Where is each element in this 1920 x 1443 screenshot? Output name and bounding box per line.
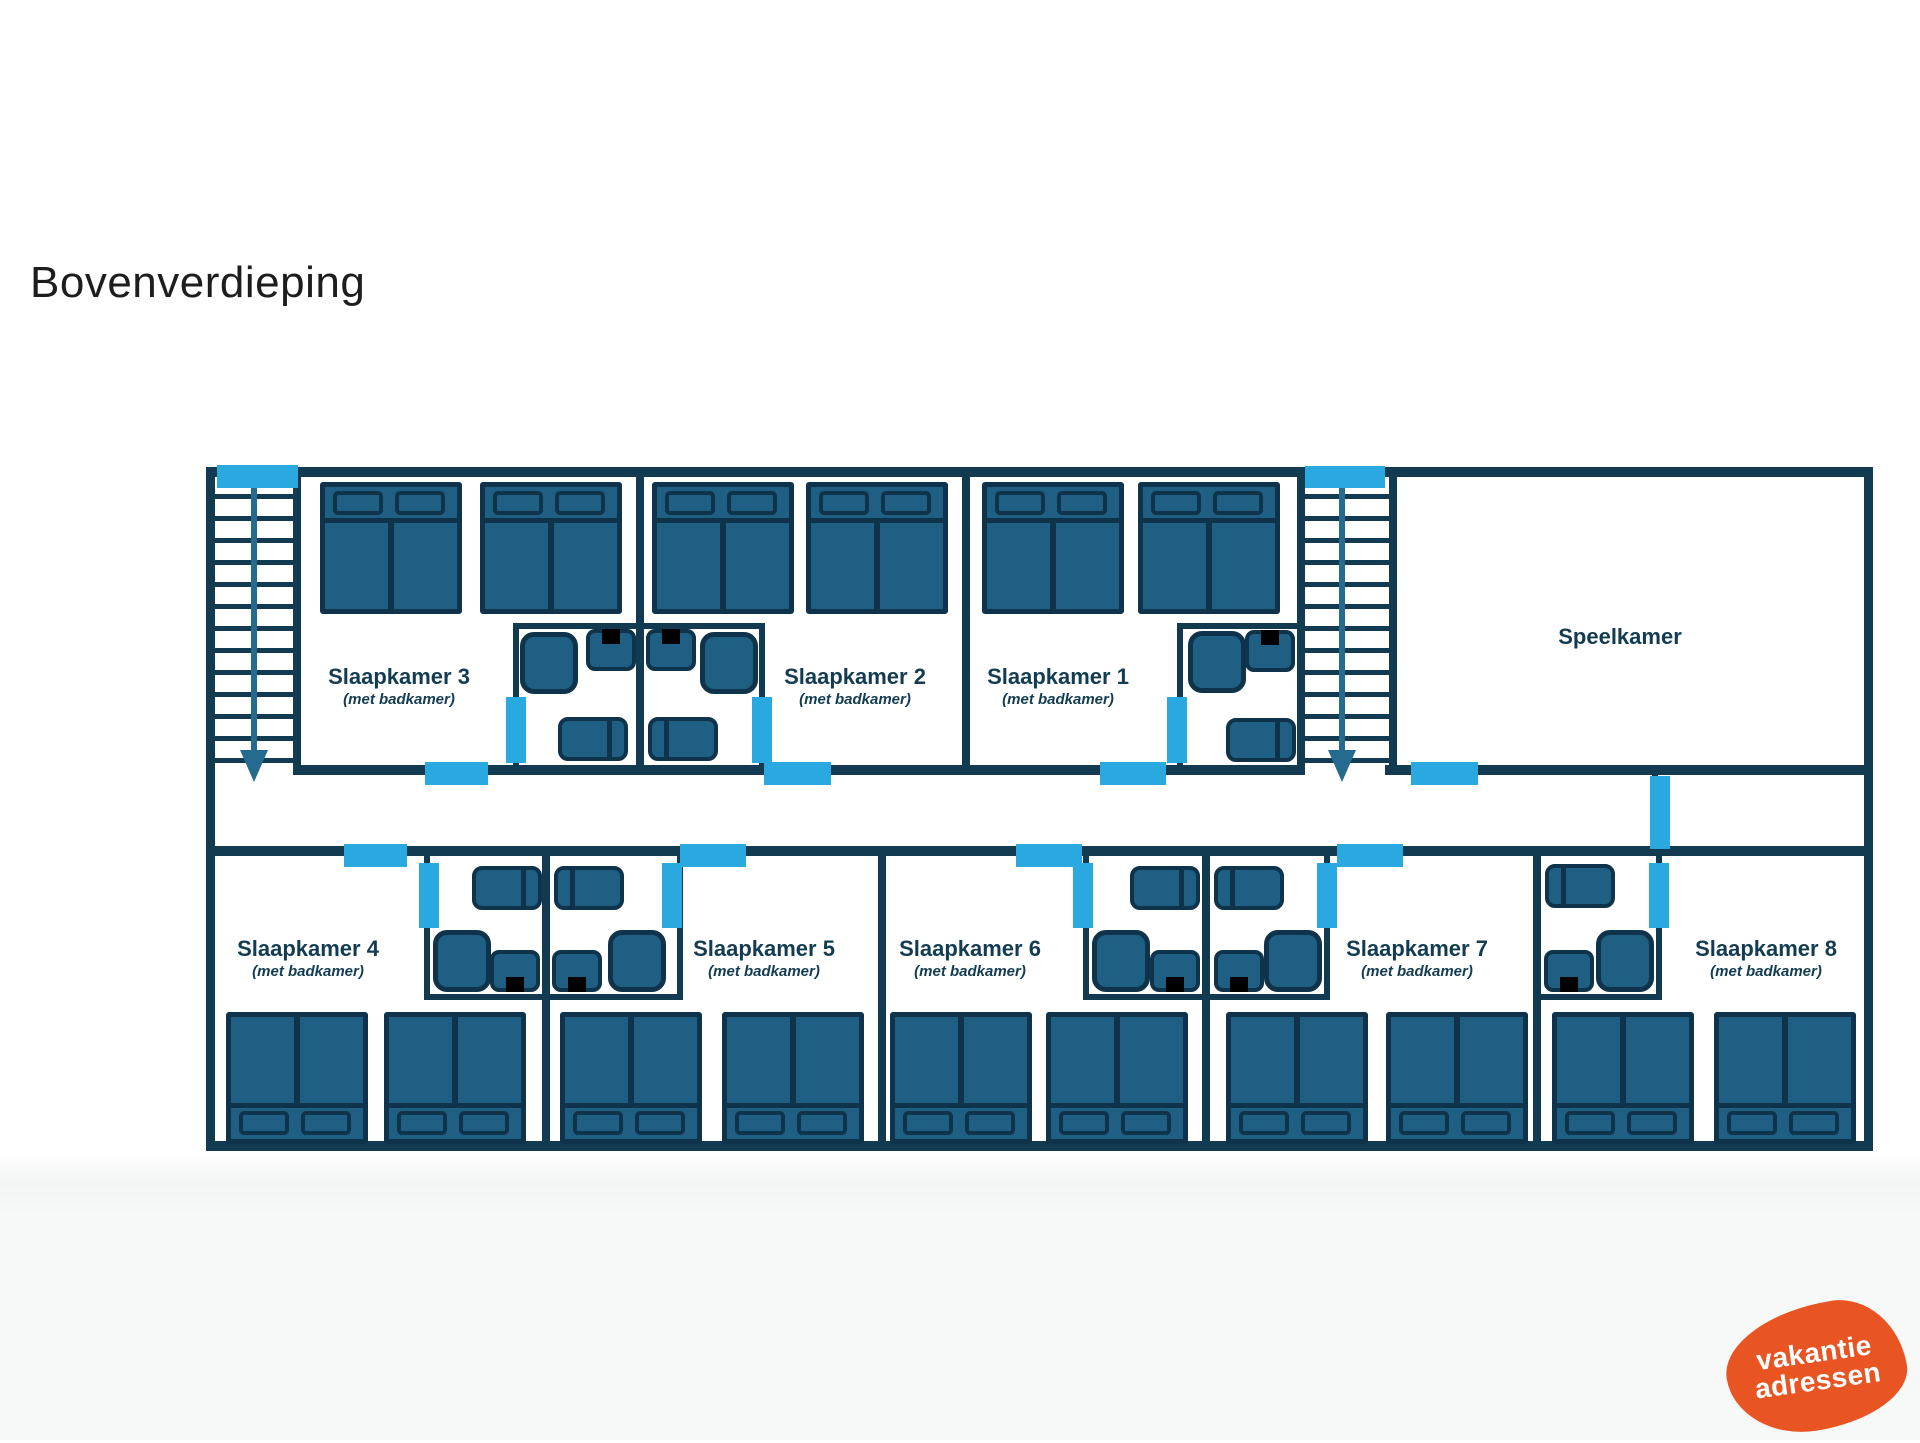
bathtub-icon — [1130, 866, 1200, 910]
room-subtitle: (met badkamer) — [1346, 963, 1488, 980]
shower-icon — [700, 632, 758, 694]
double-bed — [226, 1012, 368, 1144]
bathtub-icon — [558, 717, 628, 761]
shower-icon — [1092, 930, 1150, 992]
double-bed — [722, 1012, 864, 1144]
room-subtitle: (met badkamer) — [987, 691, 1129, 708]
door-marker — [1167, 697, 1187, 763]
double-bed — [1552, 1012, 1694, 1144]
shower-icon — [1188, 631, 1246, 693]
room-label-slaapkamer-3: Slaapkamer 3 (met badkamer) — [328, 664, 470, 708]
double-bed — [1714, 1012, 1856, 1144]
shower-icon — [608, 930, 666, 992]
wall — [206, 467, 215, 1151]
double-bed — [1226, 1012, 1368, 1144]
room-subtitle: (met badkamer) — [693, 963, 835, 980]
staircase-down-arrow — [240, 750, 268, 782]
room-name: Slaapkamer 8 — [1695, 936, 1837, 962]
bathtub-icon — [1545, 864, 1615, 908]
shower-icon — [433, 930, 491, 992]
room-label-slaapkamer-2: Slaapkamer 2 (met badkamer) — [784, 664, 926, 708]
floor-plan: Slaapkamer 3 (met badkamer) Slaapkamer 2… — [0, 0, 1920, 1440]
double-bed — [1386, 1012, 1528, 1144]
toilet-cistern — [1560, 977, 1578, 992]
toilet-icon — [1150, 950, 1200, 992]
vakantieadressen-logo: vakantie adressen — [1726, 1304, 1906, 1430]
bathroom-wall — [1535, 994, 1662, 1000]
door-marker — [419, 863, 439, 928]
wall — [1297, 467, 1305, 775]
wall — [636, 467, 644, 775]
room-subtitle: (met badkamer) — [1695, 963, 1837, 980]
room-label-slaapkamer-7: Slaapkamer 7 (met badkamer) — [1346, 936, 1488, 980]
door-marker — [344, 844, 407, 867]
staircase-center-rail — [251, 477, 257, 752]
toilet-cistern — [602, 629, 620, 644]
toilet-icon — [490, 950, 540, 992]
room-subtitle: (met badkamer) — [328, 691, 470, 708]
double-bed — [890, 1012, 1032, 1144]
door-marker — [217, 465, 298, 488]
double-bed — [806, 482, 948, 614]
double-bed — [652, 482, 794, 614]
bathtub-icon — [554, 866, 624, 910]
toilet-cistern — [1230, 977, 1248, 992]
room-label-slaapkamer-1: Slaapkamer 1 (met badkamer) — [987, 664, 1129, 708]
door-marker — [506, 697, 526, 763]
toilet-icon — [646, 629, 696, 671]
toilet-cistern — [1166, 977, 1184, 992]
door-marker — [425, 762, 488, 785]
room-label-slaapkamer-6: Slaapkamer 6 (met badkamer) — [899, 936, 1041, 980]
room-name: Slaapkamer 5 — [693, 936, 835, 962]
wall — [1864, 467, 1873, 1151]
double-bed — [560, 1012, 702, 1144]
staircase-down-arrow — [1328, 750, 1356, 782]
double-bed — [1138, 482, 1280, 614]
toilet-icon — [552, 950, 602, 992]
bathtub-icon — [1226, 718, 1296, 762]
shower-icon — [1264, 930, 1322, 992]
door-marker — [1650, 776, 1670, 849]
door-marker — [764, 762, 831, 785]
room-subtitle: (met badkamer) — [237, 963, 379, 980]
door-marker — [680, 844, 746, 867]
room-label-speelkamer: Speelkamer — [1558, 624, 1682, 650]
door-marker — [1411, 762, 1478, 785]
door-marker — [1649, 863, 1669, 928]
bathroom-wall — [424, 994, 683, 1000]
room-label-slaapkamer-8: Slaapkamer 8 (met badkamer) — [1695, 936, 1837, 980]
wall — [1389, 467, 1397, 775]
wall — [878, 846, 886, 1151]
bathroom-wall — [1083, 994, 1330, 1000]
double-bed — [320, 482, 462, 614]
toilet-cistern — [506, 977, 524, 992]
wall — [293, 467, 301, 775]
room-label-slaapkamer-5: Slaapkamer 5 (met badkamer) — [693, 936, 835, 980]
logo-text: vakantie adressen — [1718, 1292, 1914, 1442]
bathroom-wall — [513, 623, 765, 629]
toilet-icon — [586, 629, 636, 671]
shower-icon — [520, 632, 578, 694]
toilet-icon — [1245, 630, 1295, 672]
door-marker — [1305, 466, 1385, 488]
door-marker — [662, 863, 682, 928]
bathtub-icon — [1214, 866, 1284, 910]
toilet-icon — [1544, 950, 1594, 992]
door-marker — [752, 697, 772, 763]
toilet-cistern — [662, 629, 680, 644]
staircase-center-rail — [1339, 477, 1345, 752]
room-name: Slaapkamer 1 — [987, 664, 1129, 690]
bathtub-icon — [472, 866, 542, 910]
door-marker — [1317, 863, 1337, 928]
room-name: Slaapkamer 4 — [237, 936, 379, 962]
shower-icon — [1596, 930, 1654, 992]
room-name: Slaapkamer 3 — [328, 664, 470, 690]
bathroom-wall — [1177, 623, 1303, 629]
toilet-icon — [1214, 950, 1264, 992]
room-name: Slaapkamer 6 — [899, 936, 1041, 962]
door-marker — [1337, 844, 1403, 867]
double-bed — [384, 1012, 526, 1144]
bathtub-icon — [648, 717, 718, 761]
door-marker — [1073, 863, 1093, 928]
door-marker — [1100, 762, 1166, 785]
wall — [962, 467, 970, 775]
room-name: Slaapkamer 2 — [784, 664, 926, 690]
room-label-slaapkamer-4: Slaapkamer 4 (met badkamer) — [237, 936, 379, 980]
double-bed — [982, 482, 1124, 614]
room-subtitle: (met badkamer) — [899, 963, 1041, 980]
room-name: Speelkamer — [1558, 624, 1682, 650]
toilet-cistern — [1261, 630, 1279, 645]
toilet-cistern — [568, 977, 586, 992]
double-bed — [480, 482, 622, 614]
room-subtitle: (met badkamer) — [784, 691, 926, 708]
wall — [206, 467, 1873, 477]
room-name: Slaapkamer 7 — [1346, 936, 1488, 962]
staircase — [1305, 477, 1389, 765]
double-bed — [1046, 1012, 1188, 1144]
